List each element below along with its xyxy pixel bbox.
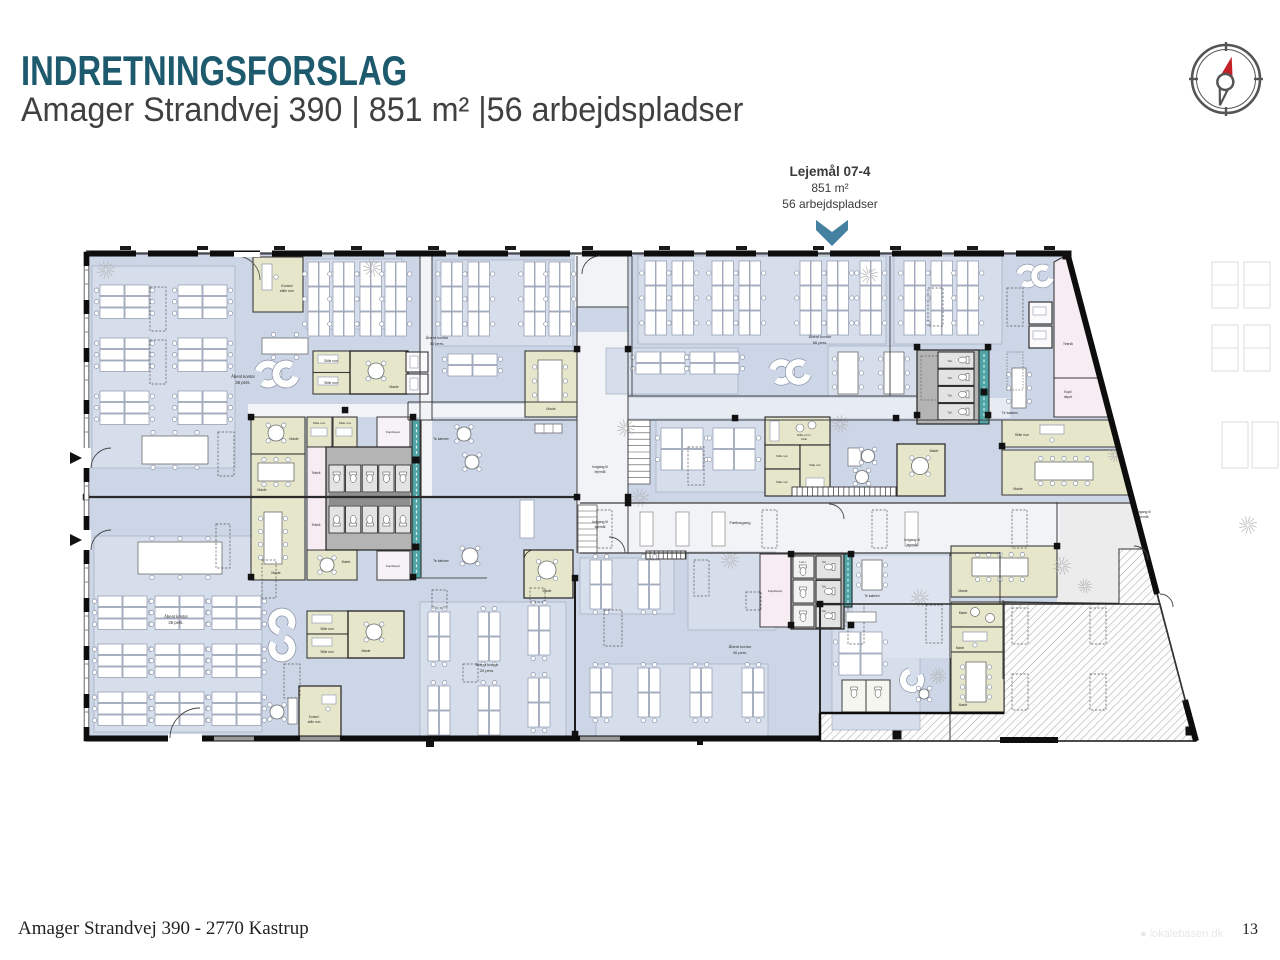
svg-text:Teknik: Teknik	[1063, 342, 1073, 346]
svg-text:Møde: Møde	[930, 449, 939, 453]
svg-text:Toil.: Toil.	[948, 359, 953, 363]
svg-text:Te kabiner: Te kabiner	[433, 559, 450, 563]
svg-text:Indgang til: Indgang til	[904, 538, 920, 542]
svg-text:40 pers.: 40 pers.	[733, 650, 747, 655]
svg-text:Åbent kontor: Åbent kontor	[729, 644, 752, 649]
svg-text:Møde: Møde	[959, 611, 968, 615]
svg-text:lejemål: lejemål	[595, 470, 606, 474]
svg-text:Kopi/depot: Kopi/depot	[386, 564, 401, 568]
svg-text:Te køkken: Te køkken	[864, 594, 880, 598]
svg-text:Toil.: Toil.	[822, 609, 827, 613]
svg-text:Toil.: Toil.	[948, 376, 953, 380]
svg-text:Møde: Møde	[1013, 487, 1022, 491]
svg-text:Møde: Møde	[362, 649, 371, 653]
svg-text:Stille rum: Stille rum	[1015, 433, 1029, 437]
svg-text:hvile: hvile	[801, 437, 808, 441]
svg-text:Indgang til: Indgang til	[592, 520, 608, 524]
svg-text:Te køkken: Te køkken	[1002, 411, 1018, 415]
svg-text:Stille rum: Stille rum	[776, 480, 789, 484]
svg-text:Toil.: Toil.	[948, 411, 953, 415]
svg-text:Møde: Møde	[959, 703, 968, 707]
svg-text:Kopi/: Kopi/	[1064, 390, 1072, 394]
svg-text:Møde: Møde	[257, 488, 266, 492]
svg-text:Stille rum: Stille rum	[313, 421, 326, 425]
svg-text:36 pers.: 36 pers.	[168, 620, 183, 625]
svg-text:Toil.: Toil.	[822, 584, 827, 588]
svg-text:Åbent kontor: Åbent kontor	[231, 374, 255, 379]
svg-text:H-b-t.: H-b-t.	[800, 560, 807, 564]
svg-text:Åbent kontor: Åbent kontor	[809, 334, 832, 339]
svg-text:Stille rum: Stille rum	[320, 627, 334, 631]
svg-text:Åbent kontor: Åbent kontor	[164, 614, 188, 619]
svg-text:Kontor/: Kontor/	[281, 284, 293, 288]
svg-text:Møde: Møde	[956, 646, 965, 650]
svg-text:Fællesgang: Fællesgang	[730, 520, 751, 525]
svg-text:Stille rum: Stille rum	[320, 650, 334, 654]
svg-text:Møde: Møde	[389, 385, 398, 389]
svg-text:Åbent kontor: Åbent kontor	[476, 662, 499, 667]
svg-text:Møde: Møde	[543, 589, 552, 593]
svg-text:Stille rum: Stille rum	[324, 359, 338, 363]
svg-text:Møde: Møde	[546, 407, 555, 411]
svg-text:66 pers.: 66 pers.	[813, 340, 827, 345]
svg-text:36 pers.: 36 pers.	[235, 380, 250, 385]
svg-text:Teknik: Teknik	[311, 523, 320, 527]
svg-text:Stille rum: Stille rum	[339, 421, 352, 425]
svg-text:Kopi/depot: Kopi/depot	[768, 589, 783, 593]
svg-text:stille rum: stille rum	[308, 720, 321, 724]
svg-text:Stille rum: Stille rum	[809, 463, 822, 467]
svg-text:depot: depot	[1064, 395, 1073, 399]
svg-text:Kontor/: Kontor/	[309, 715, 319, 719]
svg-text:Møde: Møde	[958, 589, 967, 593]
svg-text:Møde: Møde	[289, 437, 298, 441]
svg-text:Teknik: Teknik	[311, 471, 320, 475]
svg-text:lejemål: lejemål	[595, 525, 606, 529]
svg-text:Kopi/depot: Kopi/depot	[386, 430, 401, 434]
svg-text:Toil.: Toil.	[822, 560, 827, 564]
svg-text:Toil.: Toil.	[948, 393, 953, 397]
svg-text:Møde: Møde	[342, 560, 351, 564]
svg-text:lejemål: lejemål	[907, 543, 918, 547]
svg-text:Te kabiner: Te kabiner	[433, 437, 450, 441]
svg-text:stille rum: stille rum	[280, 289, 294, 293]
svg-text:Stille rum: Stille rum	[776, 454, 789, 458]
svg-text:Stille rum: Stille rum	[324, 381, 338, 385]
svg-text:20 pers.: 20 pers.	[480, 668, 494, 673]
svg-text:Indgang til: Indgang til	[592, 465, 608, 469]
svg-text:Åbent kontor: Åbent kontor	[426, 335, 449, 340]
